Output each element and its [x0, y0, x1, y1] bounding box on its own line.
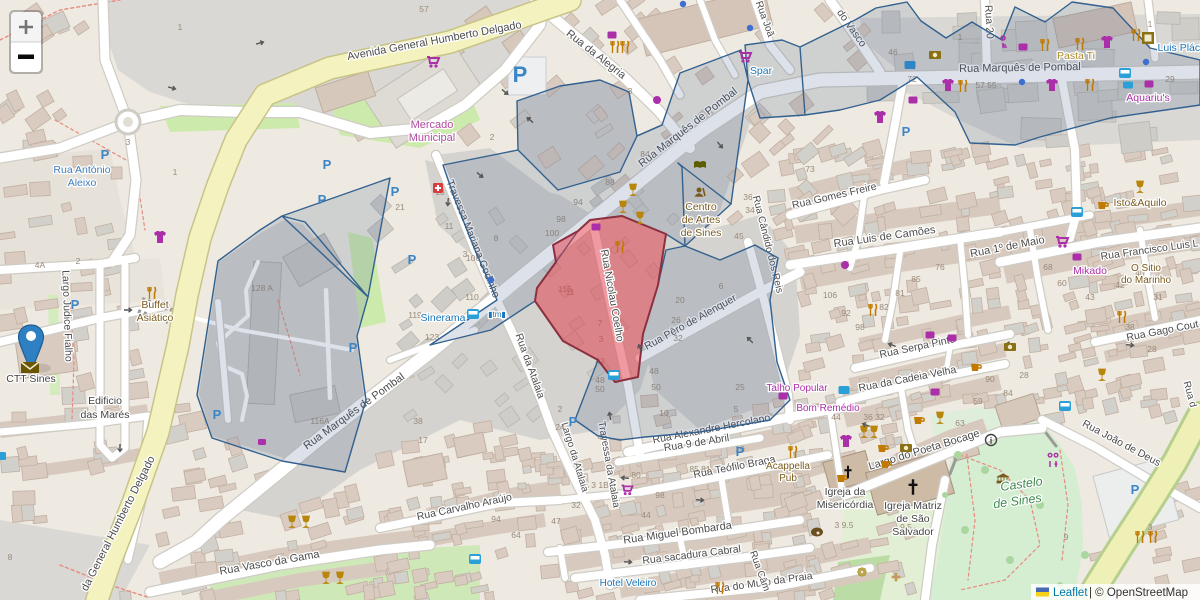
svg-text:P: P [101, 147, 110, 162]
svg-text:110: 110 [465, 292, 479, 302]
svg-text:36 32: 36 32 [863, 412, 885, 422]
svg-text:76: 76 [935, 262, 945, 272]
svg-text:Leaflet: Leaflet [1053, 587, 1088, 599]
svg-text:P: P [323, 157, 332, 172]
svg-text:34: 34 [745, 205, 755, 215]
svg-text:das Marés: das Marés [80, 409, 129, 421]
svg-text:Salvador: Salvador [892, 526, 934, 538]
svg-text:94: 94 [491, 514, 501, 524]
svg-text:Sinerama: Sinerama [421, 312, 466, 324]
svg-text:Rua António: Rua António [53, 164, 110, 176]
svg-text:P: P [902, 124, 911, 139]
svg-text:Buffet: Buffet [141, 299, 168, 311]
svg-text:73: 73 [805, 164, 815, 174]
svg-text:68: 68 [1043, 262, 1053, 272]
svg-text:3: 3 [463, 249, 468, 259]
svg-text:P: P [213, 407, 222, 422]
svg-text:de Sines: de Sines [681, 227, 722, 239]
svg-text:3 1B: 3 1B [591, 480, 609, 490]
svg-text:82: 82 [879, 302, 889, 312]
svg-text:32: 32 [571, 500, 581, 510]
svg-text:17: 17 [418, 435, 428, 445]
svg-text:57: 57 [419, 4, 429, 14]
svg-text:Pasta Ti: Pasta Ti [1057, 50, 1095, 62]
svg-text:98: 98 [855, 322, 865, 332]
svg-text:92: 92 [841, 308, 851, 318]
svg-text:P: P [391, 184, 400, 199]
svg-text:Misericórdia: Misericórdia [817, 499, 874, 511]
svg-text:2: 2 [490, 132, 495, 142]
svg-text:2: 2 [558, 404, 563, 414]
svg-text:de São: de São [896, 513, 929, 525]
svg-text:Bom Remédio: Bom Remédio [796, 403, 860, 414]
svg-text:Asiático: Asiático [137, 312, 174, 324]
svg-text:31: 31 [1153, 292, 1163, 302]
svg-text:Spar: Spar [750, 65, 773, 77]
svg-text:Isto&Aquilo: Isto&Aquilo [1113, 197, 1166, 209]
svg-text:▮tm▮: ▮tm▮ [488, 310, 506, 319]
svg-text:47: 47 [551, 516, 561, 526]
svg-text:Igreja Matriz: Igreja Matriz [884, 500, 942, 512]
svg-text:3: 3 [126, 137, 131, 147]
svg-text:1: 1 [1148, 19, 1153, 29]
svg-text:Pub: Pub [779, 473, 797, 484]
svg-text:106: 106 [823, 290, 837, 300]
svg-text:Municipal: Municipal [409, 132, 455, 144]
svg-text:do Marinho: do Marinho [1121, 275, 1171, 286]
svg-text:2: 2 [76, 256, 81, 266]
svg-text:98: 98 [655, 490, 665, 500]
svg-text:43: 43 [1085, 292, 1095, 302]
svg-text:85 81: 85 81 [689, 464, 711, 474]
svg-text:| © OpenStreetMap: | © OpenStreetMap [1089, 587, 1188, 599]
svg-text:4A: 4A [35, 260, 46, 270]
svg-text:Mikado: Mikado [1073, 265, 1107, 277]
svg-text:9: 9 [1064, 532, 1069, 542]
svg-text:81: 81 [895, 288, 905, 298]
svg-text:Aleixo: Aleixo [68, 177, 97, 189]
svg-text:O Sitio: O Sitio [1131, 263, 1161, 274]
svg-text:45: 45 [734, 231, 744, 241]
svg-text:Igreja da: Igreja da [825, 486, 866, 498]
svg-text:36: 36 [743, 192, 753, 202]
svg-text:64: 64 [511, 530, 521, 540]
svg-text:60: 60 [1057, 278, 1067, 288]
svg-text:11: 11 [445, 221, 454, 231]
svg-text:P: P [513, 62, 528, 87]
svg-text:Hotel Veleiro: Hotel Veleiro [600, 578, 657, 589]
svg-text:Mercado: Mercado [411, 119, 454, 131]
svg-text:38: 38 [413, 416, 423, 426]
svg-text:P: P [408, 252, 417, 267]
svg-text:59: 59 [973, 396, 983, 406]
svg-text:P: P [71, 297, 80, 312]
svg-text:8: 8 [8, 552, 13, 562]
svg-text:P: P [736, 444, 745, 459]
svg-text:90: 90 [985, 374, 995, 384]
svg-text:44: 44 [641, 510, 651, 520]
svg-text:Aquariu's: Aquariu's [1126, 92, 1169, 104]
svg-text:3 9.5: 3 9.5 [835, 520, 854, 530]
svg-text:1: 1 [173, 167, 178, 177]
svg-text:P: P [349, 340, 358, 355]
svg-text:1: 1 [178, 22, 183, 32]
svg-text:P: P [1131, 482, 1140, 497]
svg-text:63: 63 [955, 418, 965, 428]
svg-text:Talho Popular: Talho Popular [766, 383, 828, 394]
svg-text:P: P [569, 414, 578, 429]
svg-text:CTT Sines: CTT Sines [6, 373, 55, 385]
svg-text:38: 38 [1125, 322, 1135, 332]
svg-text:80: 80 [631, 470, 641, 480]
svg-text:84: 84 [1003, 388, 1013, 398]
svg-text:3: 3 [1148, 522, 1153, 532]
svg-text:Luis Pláci: Luis Pláci [1158, 42, 1200, 54]
svg-text:28: 28 [1147, 344, 1157, 354]
svg-text:Acappella: Acappella [766, 461, 810, 472]
svg-text:24: 24 [555, 422, 565, 432]
svg-text:P: P [318, 192, 327, 207]
svg-text:Edificio: Edificio [88, 395, 122, 407]
svg-text:Centro: Centro [685, 201, 717, 213]
svg-text:85: 85 [911, 274, 921, 284]
svg-text:de Artes: de Artes [682, 214, 721, 226]
svg-text:28: 28 [1019, 370, 1029, 380]
svg-text:21: 21 [395, 202, 405, 212]
